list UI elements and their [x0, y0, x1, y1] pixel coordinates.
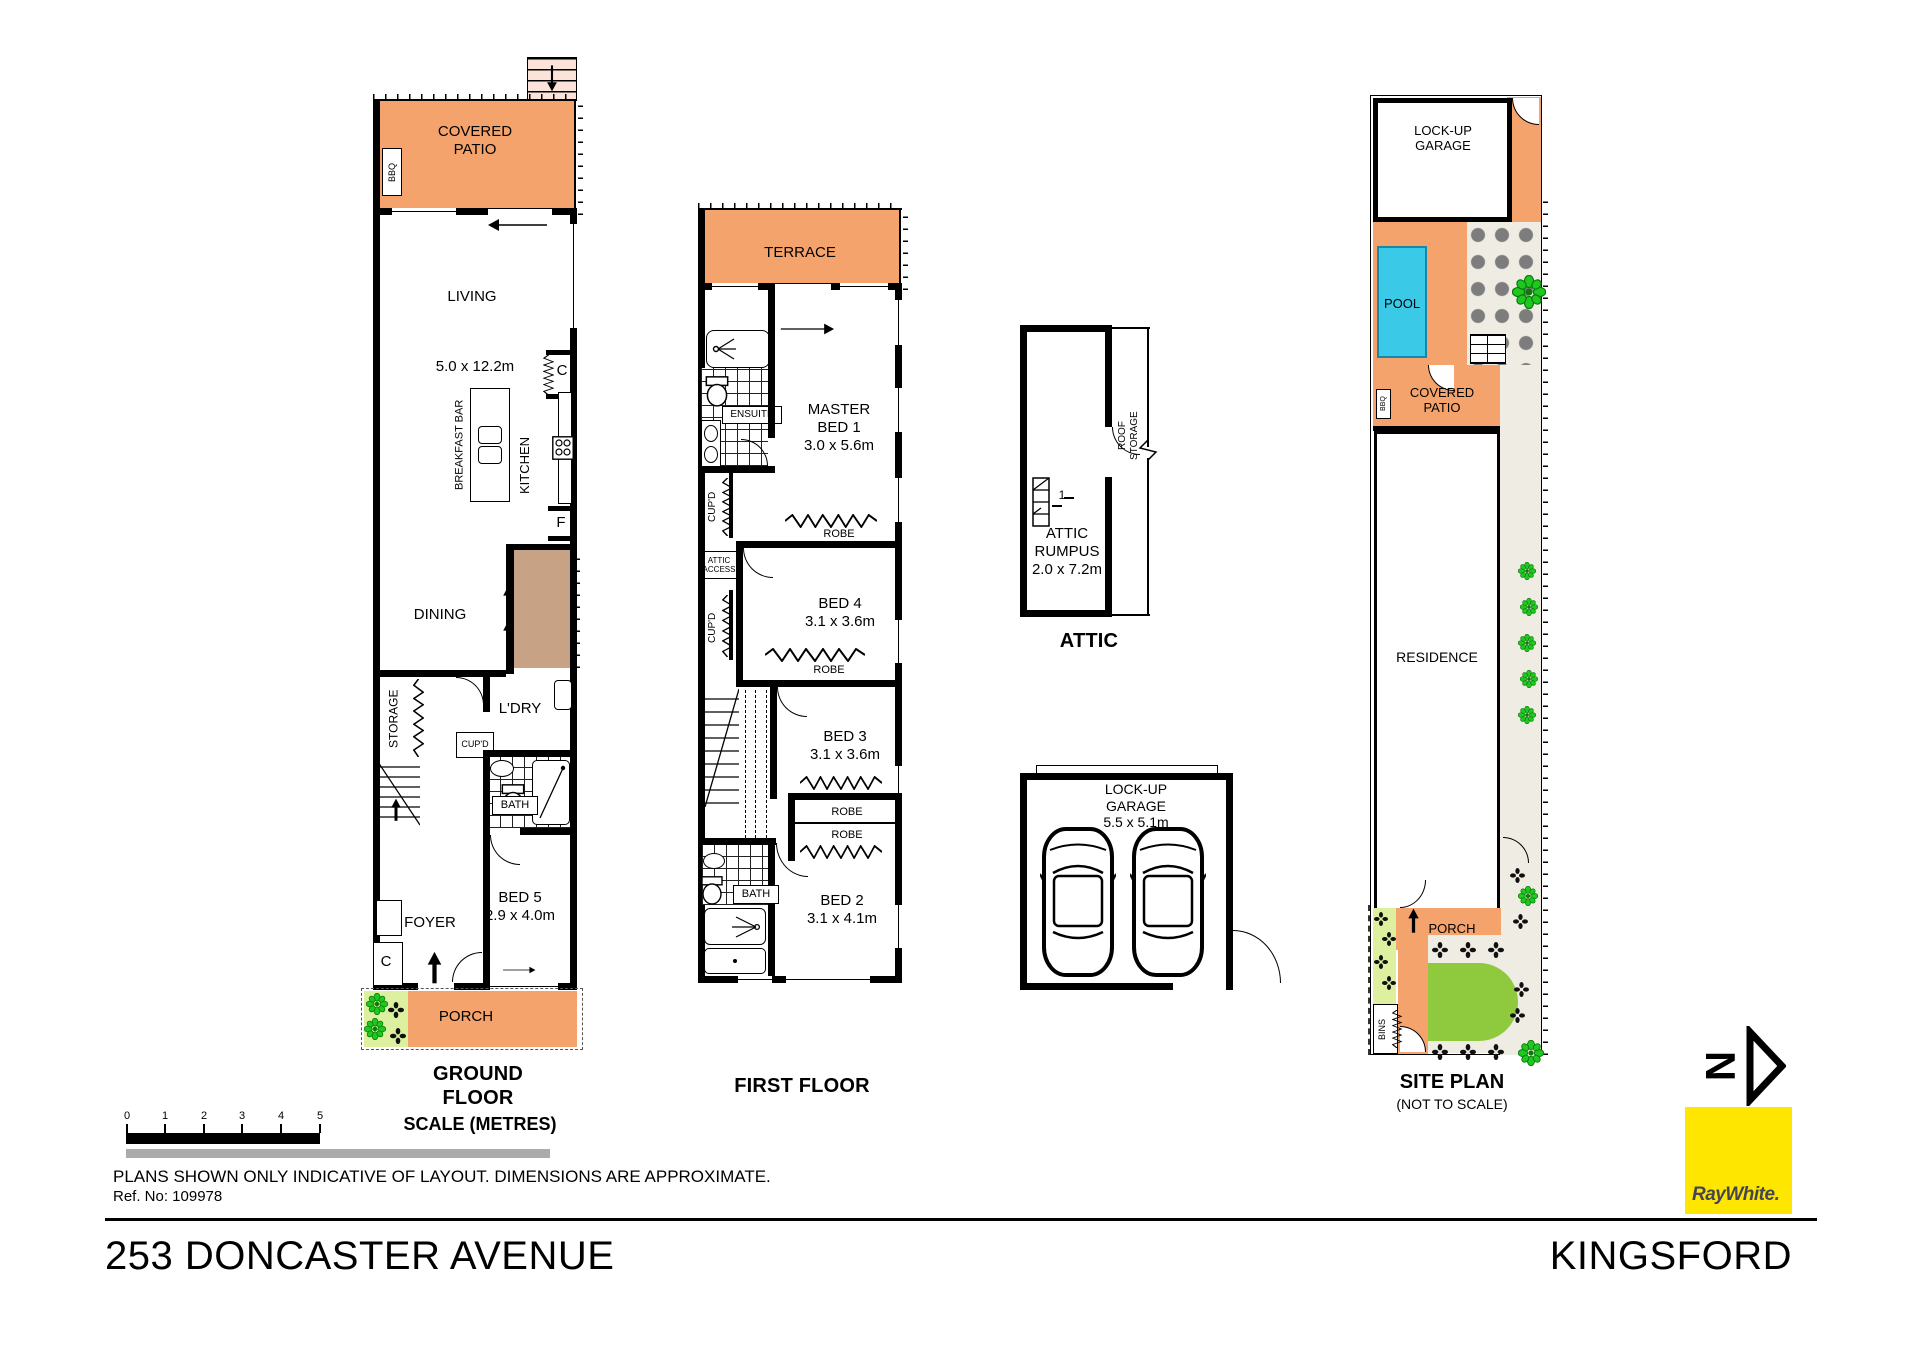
scale-tick-label: 1 [155, 1110, 175, 1123]
roof-line [1147, 327, 1149, 447]
plant-icon [1514, 982, 1529, 997]
bed5-label: BED 5 2.9 x 4.0m [478, 888, 562, 926]
bed4-dim: 3.1 x 3.6m [805, 613, 875, 631]
master-bed-label: MASTER BED 1 3.0 x 5.6m [793, 400, 885, 456]
scale-bar-black [126, 1133, 320, 1144]
plant-icon [1518, 634, 1536, 652]
floorplan-page: COVERED PATIO BBQ LIVING 5.0 x 12.2m BRE… [0, 0, 1920, 1357]
residence [1374, 431, 1500, 933]
disclaimer-text: PLANS SHOWN ONLY INDICATIVE OF LAYOUT. D… [113, 1167, 771, 1187]
site-steps [1470, 334, 1506, 364]
wall [1020, 325, 1112, 332]
break-line [1138, 440, 1158, 460]
slider-arrow-icon [487, 218, 549, 232]
covered-patio-label: COVERED PATIO [405, 122, 545, 160]
scale-bar-gray [126, 1149, 550, 1158]
fridge-label: F [548, 514, 574, 532]
plant-icon [1432, 1044, 1448, 1060]
window [895, 478, 902, 522]
scale-tick [241, 1124, 243, 1133]
bed2-name: BED 2 [820, 892, 863, 910]
garage-name: LOCK-UP GARAGE [1105, 781, 1167, 814]
bed4-label: BED 4 3.1 x 3.6m [790, 594, 890, 632]
wall [1020, 773, 1233, 780]
window [738, 976, 772, 983]
attic-rumpus-name: ATTIC RUMPUS [1034, 525, 1099, 560]
bbq-label: BBQ [1377, 391, 1390, 417]
window [895, 620, 902, 663]
slider-arrow-icon [779, 322, 835, 336]
plant-icon [1518, 1040, 1544, 1066]
scale-tick-label: 3 [232, 1110, 252, 1123]
plant-icon [1460, 942, 1476, 958]
wall [698, 838, 776, 845]
attic-access-label: ATTIC ACCESS [701, 551, 737, 579]
window [786, 976, 870, 983]
deck [514, 550, 570, 668]
shower-screen-line [534, 762, 568, 822]
robe-doors [800, 776, 882, 790]
closet-label: C [375, 953, 397, 971]
bed2-label: BED 2 3.1 x 4.1m [792, 891, 892, 929]
window [712, 283, 758, 290]
tub-drain [733, 959, 737, 963]
window [840, 283, 888, 290]
scale-tick [319, 1124, 321, 1133]
bed3-dim: 3.1 x 3.6m [810, 746, 880, 764]
scale-tick-label: 0 [117, 1110, 137, 1123]
raywhite-logo: RayWhite. [1685, 1107, 1792, 1214]
ref-number: Ref. No: 109978 [113, 1188, 222, 1205]
kitchen-label: KITCHEN [516, 418, 533, 513]
plant-icon [1488, 942, 1504, 958]
wall [548, 506, 577, 511]
shower-head-icon [710, 334, 740, 364]
attic-rumpus-label: ATTIC RUMPUS 2.0 x 7.2m [1024, 524, 1110, 580]
wall [768, 290, 775, 438]
wall [899, 208, 901, 290]
plant-icon [390, 1028, 406, 1044]
plant-icon [388, 1002, 404, 1018]
bed4-name: BED 4 [818, 595, 861, 613]
bed3-label: BED 3 3.1 x 3.6m [795, 727, 895, 765]
footer-rule [105, 1218, 1817, 1221]
plant-icon [1518, 562, 1536, 580]
window [570, 224, 577, 328]
attic-rumpus-dim: 2.0 x 7.2m [1032, 561, 1102, 579]
foyer-niche [376, 900, 402, 936]
porch-label: PORCH [428, 1008, 504, 1026]
deck-hatch [575, 550, 580, 668]
dash [1052, 505, 1062, 507]
roof-line [1112, 327, 1150, 329]
bed5-dim: 2.9 x 4.0m [485, 907, 555, 925]
wall [1020, 983, 1173, 990]
scale-tick [203, 1124, 205, 1133]
site-garage [1373, 98, 1512, 222]
door-opening [775, 284, 831, 290]
bins-label: BINS [1375, 1008, 1389, 1050]
window [895, 388, 902, 432]
sink-icon [478, 426, 502, 444]
basin-icon [703, 853, 725, 869]
window [895, 905, 902, 948]
patio-hatch [578, 99, 583, 215]
stair-rail [755, 690, 757, 843]
plant-icon [1488, 1044, 1504, 1060]
boundary-dashed [1368, 905, 1372, 1055]
laundry-label: L'DRY [494, 700, 546, 718]
breakfast-bar-island [470, 388, 510, 502]
attic-stairs [1032, 477, 1050, 527]
wall [506, 550, 514, 674]
bins-door [1392, 1010, 1402, 1048]
wall [698, 466, 775, 473]
scale-tick [280, 1124, 282, 1133]
plant-icon [1382, 976, 1396, 990]
wall [1020, 773, 1027, 990]
wall [729, 590, 733, 660]
cupboard-label: CUP'D [705, 600, 720, 655]
site-plan-note: (NOT TO SCALE) [1382, 1096, 1522, 1113]
wall [736, 680, 902, 687]
door-arc [743, 548, 773, 578]
robe-label: ROBE [810, 527, 868, 541]
scale-tick [126, 1124, 128, 1133]
car-icon [1040, 826, 1116, 978]
stove-icon [552, 436, 574, 460]
scale-tick-label: 2 [194, 1110, 214, 1123]
slider-arrow-icon [502, 964, 536, 976]
plant-icon [1518, 706, 1536, 724]
door-opening [488, 209, 552, 215]
wall [548, 536, 577, 541]
breakfast-bar-label: BREAKFAST BAR [452, 388, 467, 502]
property-address: 253 DONCASTER AVENUE [105, 1234, 614, 1279]
window [392, 208, 456, 215]
toilet-icon [700, 876, 724, 906]
wall [1105, 325, 1112, 427]
entry-arrow-icon [426, 950, 443, 986]
wall [795, 822, 902, 824]
door-arrow-icon [502, 620, 514, 646]
garage-door-arc [1233, 930, 1281, 983]
stair-number: 1 [1052, 487, 1072, 503]
plant-icon [1520, 670, 1538, 688]
master-dim: 3.0 x 5.6m [804, 437, 874, 455]
plant-icon [1460, 1044, 1476, 1060]
bed2-dim: 3.1 x 4.1m [807, 910, 877, 928]
wall [768, 838, 775, 983]
door-arrow-icon [502, 585, 514, 611]
scale-tick [164, 1124, 166, 1133]
robe-doors [765, 648, 865, 662]
plant-icon [1512, 275, 1546, 309]
lawn [1428, 963, 1518, 1041]
plant-icon [1374, 955, 1388, 969]
car-icon [1130, 826, 1206, 978]
wall [729, 473, 733, 538]
storage-label: STORAGE [385, 680, 402, 758]
bath-label: BATH [733, 885, 779, 904]
wall [483, 750, 490, 835]
plant-icon [1432, 942, 1448, 958]
raywhite-wordmark: RayWhite. [1692, 1184, 1779, 1206]
site-patio-label: COVERED PATIO [1396, 383, 1488, 417]
robe-label: ROBE [800, 664, 858, 677]
door-arc [490, 835, 520, 865]
roof-storage-label-2: STORAGE [1128, 393, 1141, 478]
fence-hatch [1543, 200, 1548, 1055]
bbq-label: BBQ [384, 152, 400, 192]
dash [1064, 497, 1074, 499]
wall [1020, 610, 1112, 617]
bed3-name: BED 3 [823, 728, 866, 746]
basin-icon [704, 425, 718, 442]
living-dim: 5.0 x 12.2m [415, 358, 535, 376]
door-arc [777, 687, 807, 717]
attic-title: ATTIC [1044, 631, 1134, 653]
bed5-name: BED 5 [498, 889, 541, 907]
wall [736, 541, 902, 548]
robe-label: ROBE [818, 828, 876, 842]
wall [483, 674, 490, 712]
master-name: MASTER BED 1 [808, 401, 871, 436]
property-suburb: KINGSFORD [1450, 1234, 1792, 1279]
plant-icon [364, 1018, 386, 1040]
dining-label: DINING [400, 606, 480, 624]
site-plan-title: SITE PLAN [1382, 1072, 1522, 1094]
bifold-door [413, 679, 424, 757]
staircase [705, 687, 739, 843]
bath-label: BATH [492, 796, 538, 815]
toilet-icon [704, 376, 730, 408]
wall [483, 750, 577, 757]
scale-title: SCALE (METRES) [400, 1115, 560, 1135]
site-garage-label: LOCK-UP GARAGE [1393, 120, 1493, 156]
laundry-tub-icon [554, 680, 572, 710]
plant-icon [1374, 912, 1388, 926]
garage-label: LOCK-UP GARAGE 5.5 x 5.1m [1078, 780, 1194, 832]
wall [770, 687, 777, 799]
north-letter: N [1698, 1044, 1742, 1088]
roof-line [1112, 614, 1150, 616]
plant-icon [1382, 932, 1396, 946]
steps-down-arrow-icon [545, 59, 559, 97]
north-arrow-icon [1746, 1026, 1786, 1106]
robe-doors [785, 514, 877, 528]
pool-label: POOL [1377, 296, 1427, 312]
terrace-label: TERRACE [745, 244, 855, 262]
robe-label: ROBE [818, 805, 876, 819]
front-door-arc [452, 952, 482, 982]
cupboard-label: CUP'D [705, 482, 720, 532]
plant-icon [366, 993, 388, 1015]
stairs-up-arrow-icon [390, 795, 402, 825]
sink-icon [478, 446, 502, 464]
scale-tick-label: 5 [310, 1110, 330, 1123]
terrace-hatch [903, 208, 908, 290]
wall [1226, 773, 1233, 990]
ground-floor-title: GROUND FLOOR [398, 1076, 558, 1098]
shower-head-icon [726, 912, 762, 942]
plant-icon [1520, 598, 1538, 616]
first-floor-title: FIRST FLOOR [722, 1076, 882, 1098]
robe-doors [800, 845, 882, 859]
roof-line [1147, 458, 1149, 616]
plant-icon [1513, 914, 1528, 929]
foyer-label: FOYER [393, 914, 467, 932]
wall [373, 99, 380, 990]
wall [574, 99, 576, 215]
basin-icon [490, 760, 514, 777]
residence-label: RESIDENCE [1387, 649, 1487, 666]
plant-icon [1510, 868, 1525, 883]
window [895, 300, 902, 345]
door-arc [776, 843, 808, 877]
living-label: LIVING [412, 288, 532, 306]
plant-icon [1510, 1008, 1525, 1023]
wall [788, 793, 902, 800]
scale-tick-label: 4 [271, 1110, 291, 1123]
door-opening [490, 828, 520, 835]
closet-label: C [550, 362, 574, 380]
basin-icon [704, 446, 718, 463]
door-arc [456, 677, 484, 705]
wall [736, 541, 743, 683]
plant-icon [1518, 886, 1538, 906]
